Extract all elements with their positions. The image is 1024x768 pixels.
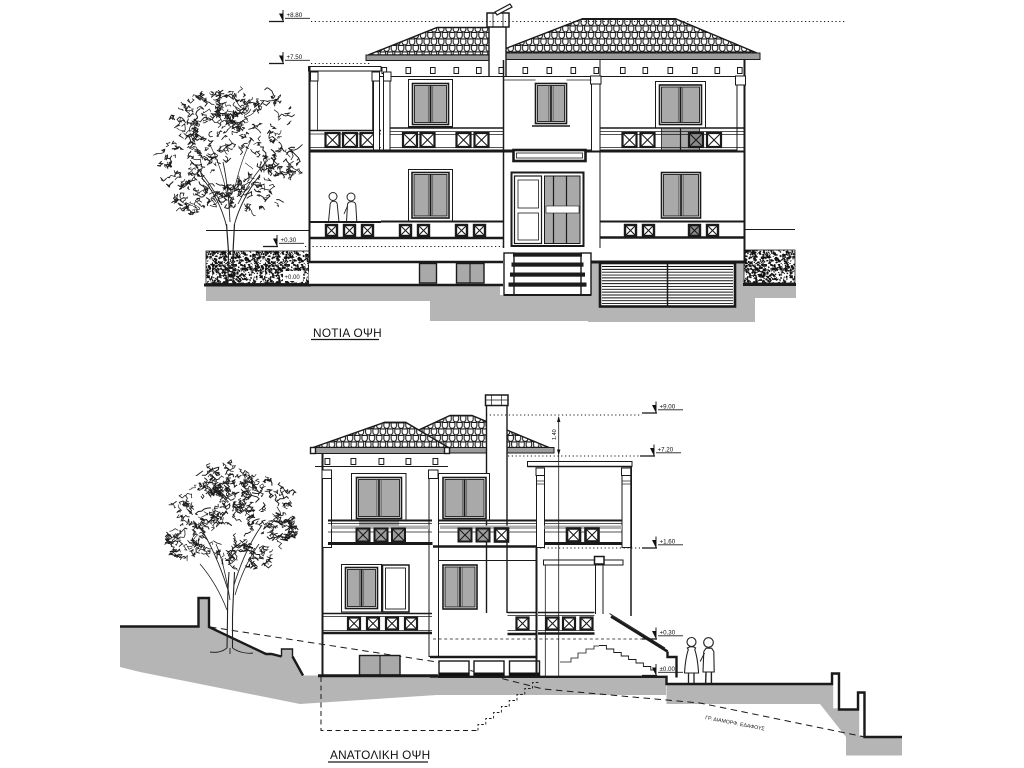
- svg-text:ΝΟΤΙΑ ΟΨΗ: ΝΟΤΙΑ ΟΨΗ: [313, 326, 382, 340]
- svg-text:ΑΝΑΤΟΛΙΚΗ ΟΨΗ: ΑΝΑΤΟΛΙΚΗ ΟΨΗ: [330, 748, 430, 762]
- svg-text:1.40: 1.40: [552, 429, 558, 440]
- svg-text:ΓΡ. ΔΙΑΜΟΡΦ. ΕΔΑΦΟΥΣ: ΓΡ. ΔΙΑΜΟΡΦ. ΕΔΑΦΟΥΣ: [705, 715, 765, 732]
- svg-text:+0.00: +0.00: [285, 275, 301, 281]
